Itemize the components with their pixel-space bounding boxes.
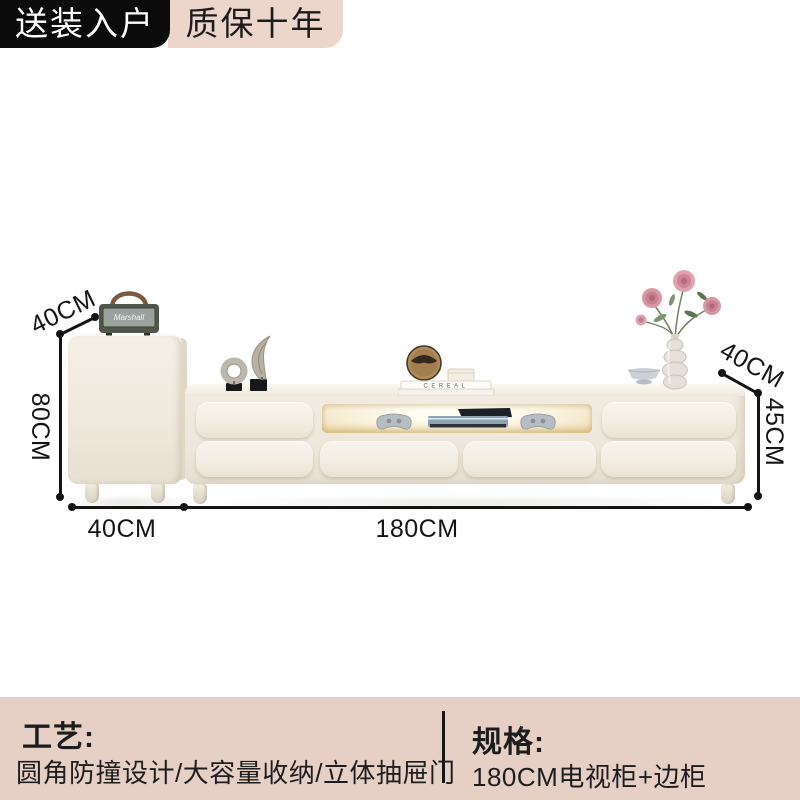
tv-height-dimension-label: 45CM [761, 397, 787, 467]
craft-value: 圆角防撞设计/大容量收纳/立体抽屉门 [16, 753, 455, 790]
side-cabinet-foot [85, 483, 99, 503]
side-height-dimension-line [59, 334, 62, 497]
tv-cabinet-foot [193, 484, 207, 504]
side-cabinet-foot [151, 483, 165, 503]
speaker-logo-text: Marshall [114, 313, 144, 322]
side-cabinet [68, 334, 182, 484]
delivery-badge: 送装入户 [0, 0, 170, 48]
tv-cabinet-drawer [320, 441, 458, 477]
dimension-dot [68, 503, 76, 511]
dimension-dot [56, 330, 64, 338]
marshall-speaker: Marshall [96, 284, 162, 336]
side-width-dimension-label: 40CM [87, 516, 157, 542]
tv-cabinet-drawer [196, 441, 313, 477]
game-console [428, 408, 512, 432]
dimension-dot [718, 369, 726, 377]
side-width-dimension-line [72, 506, 184, 509]
dimension-dot [91, 313, 99, 321]
panel-divider [442, 711, 445, 783]
tv-cabinet-drawer [601, 441, 736, 477]
tv-cabinet-drawer [463, 441, 596, 477]
book-spine-text: CEREAL [423, 384, 468, 390]
dimension-dot [180, 503, 188, 511]
tv-cabinet-drawer [196, 402, 313, 438]
product-detail-image: 送装入户 质保十年 Marshall [0, 0, 800, 800]
tv-cabinet-drawer [602, 402, 736, 438]
spec-value: 180CM电视柜+边柜 [472, 757, 707, 794]
craft-label: 工艺: [22, 712, 95, 756]
info-panel: 工艺: 圆角防撞设计/大容量收纳/立体抽屉门 规格: 180CM电视柜+边柜 [0, 697, 800, 800]
dimension-dot [754, 389, 762, 397]
clock-and-books: CEREAL [398, 340, 498, 396]
tv-cabinet-foot [721, 484, 735, 504]
dimension-dot [56, 493, 64, 501]
tv-width-dimension-label: 180CM [357, 516, 477, 542]
spec-label: 规格: [472, 717, 545, 761]
dimension-dot [754, 492, 762, 500]
dimension-dot [744, 503, 752, 511]
game-controller-right [518, 412, 558, 432]
tv-width-dimension-line [184, 506, 748, 509]
warranty-badge: 质保十年 [168, 0, 343, 48]
abstract-sculpture [220, 334, 276, 392]
side-height-dimension-label: 80CM [27, 392, 53, 462]
game-controller-left [374, 412, 414, 432]
